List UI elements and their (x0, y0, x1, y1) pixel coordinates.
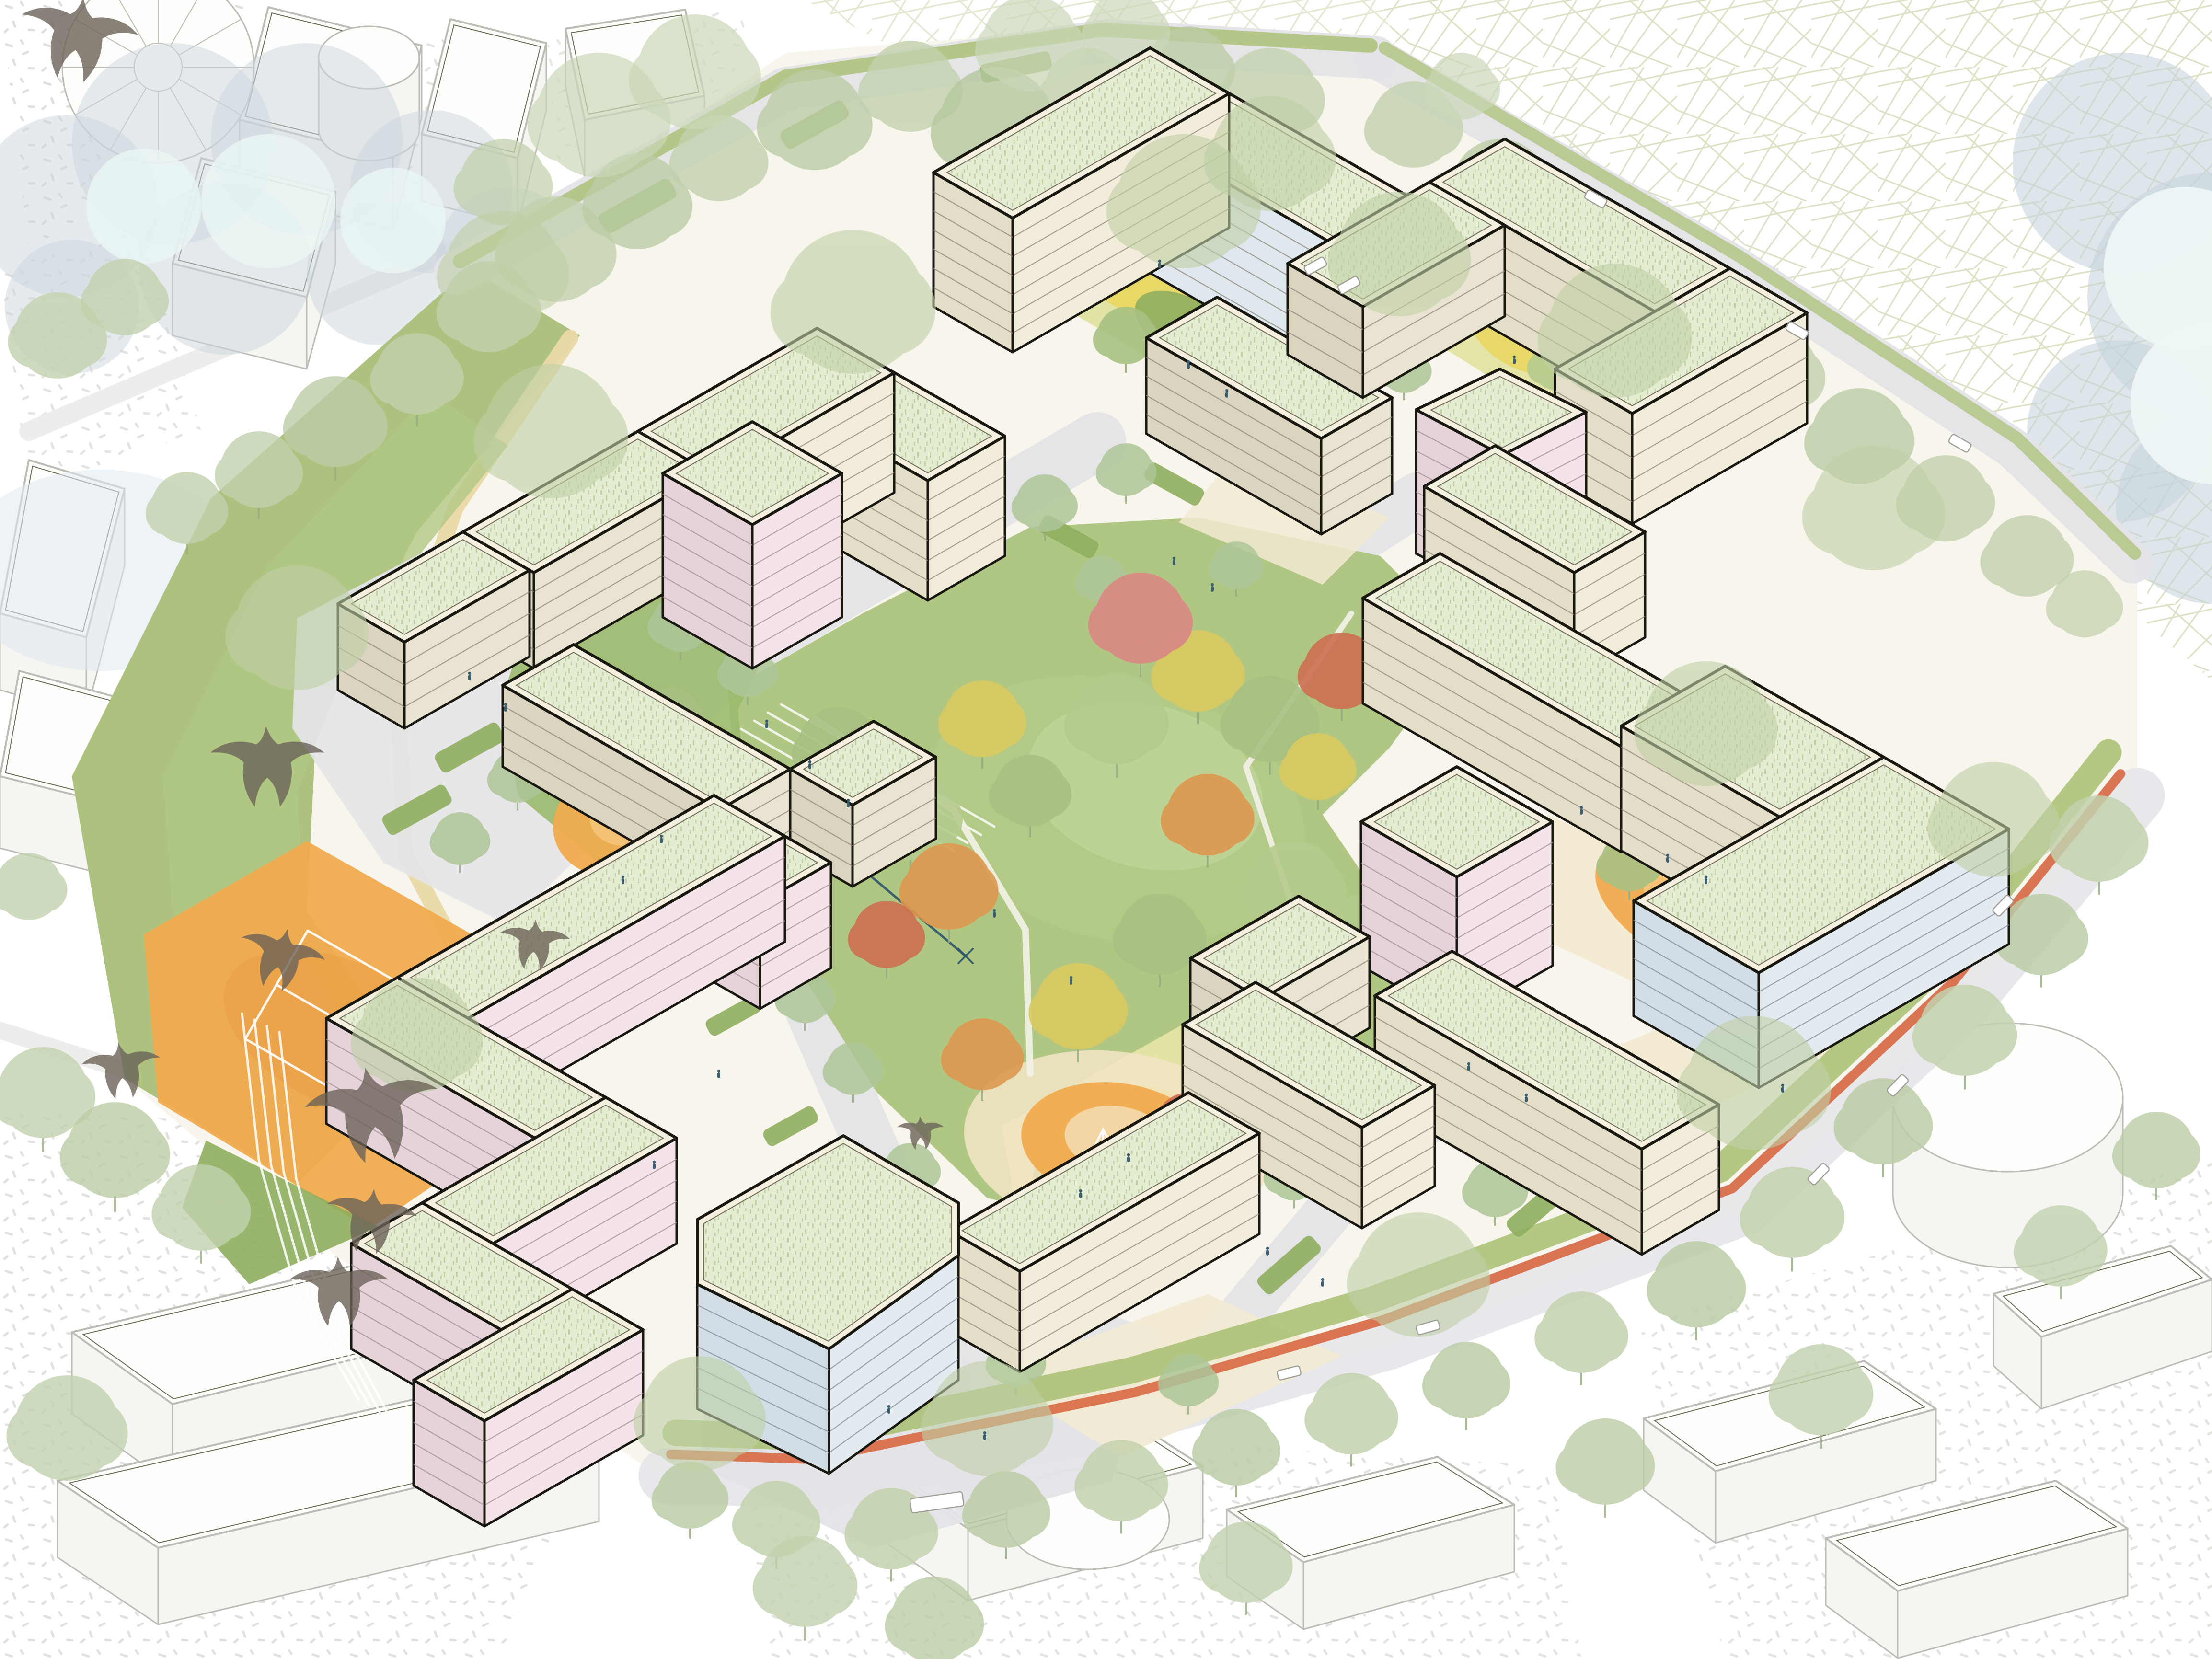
person (1173, 557, 1175, 565)
person (993, 909, 996, 918)
person-body (1158, 263, 1161, 268)
building-A5 (663, 422, 842, 668)
tree-crown (1877, 1098, 1933, 1154)
tree-crown (1185, 1366, 1219, 1400)
person-head (504, 703, 507, 706)
tree-crown (1605, 294, 1692, 381)
tree-crown (885, 1506, 938, 1559)
tree-crown (1697, 690, 1778, 771)
tree-crown (108, 1124, 170, 1186)
tree-crown (798, 1556, 858, 1616)
person (1321, 1278, 1324, 1287)
person-head (1173, 557, 1175, 560)
person-head (993, 909, 996, 912)
person (1525, 1094, 1528, 1102)
person-body (1079, 1192, 1082, 1198)
cloud-core (201, 134, 335, 268)
tree-crown (2093, 815, 2149, 871)
person-head (1580, 806, 1583, 809)
person-head (1705, 876, 1707, 878)
person (622, 876, 624, 884)
tree-crown (119, 276, 169, 326)
person (1705, 876, 1707, 884)
tree-crown (1233, 553, 1264, 584)
tree-crown (1201, 792, 1255, 845)
person (765, 720, 768, 728)
person (1079, 1189, 1082, 1198)
person-body (1127, 1156, 1130, 1162)
tree-crown (1865, 474, 1946, 555)
cloud-core (86, 149, 201, 264)
tree-crown (497, 159, 553, 215)
person-head (1266, 1247, 1269, 1250)
person (1580, 806, 1583, 815)
tree-crown (1599, 1438, 1655, 1494)
tree-crown (1985, 788, 2060, 863)
person (808, 760, 811, 769)
person-head (1666, 854, 1669, 857)
person-head (1158, 260, 1161, 263)
tree-crown (1461, 1359, 1510, 1409)
tree-crown (1457, 68, 1500, 112)
tree-crown (456, 824, 491, 859)
person (1187, 360, 1190, 369)
tree-crown (1575, 1310, 1628, 1363)
tree-crown (59, 1399, 128, 1468)
tree-crown (2054, 1223, 2108, 1277)
tree-crown (329, 397, 388, 456)
person-head (808, 760, 811, 763)
person (1070, 976, 1072, 985)
person (1225, 389, 1228, 398)
person-head (622, 876, 624, 878)
tree-crown (977, 1035, 1024, 1082)
person (717, 1070, 720, 1078)
tree-crown (1390, 220, 1471, 301)
tree-crown (1072, 983, 1128, 1039)
tree-crown (1025, 771, 1072, 818)
person (504, 703, 507, 712)
tree-crown (882, 916, 925, 960)
cloud-core (340, 168, 446, 273)
person (1781, 1084, 1784, 1093)
tree-crown (408, 1003, 483, 1078)
tree-crown (541, 394, 628, 482)
tree-crown (1958, 1005, 2017, 1065)
tree-crown (1313, 749, 1357, 792)
tree (1422, 1342, 1510, 1430)
person-head (1079, 1189, 1082, 1192)
person-body (504, 706, 507, 712)
person-head (653, 1161, 656, 1164)
tree-crown (849, 1054, 884, 1089)
person-body (1187, 363, 1190, 369)
tree-crown (1231, 1426, 1280, 1476)
tree-crown (1744, 1046, 1831, 1133)
tree-crown (686, 40, 761, 115)
tree-crown (1001, 1488, 1050, 1538)
tree-crown (1110, 694, 1169, 753)
tree-crown (2151, 1129, 2200, 1179)
tree-crown (928, 1596, 984, 1652)
person (1467, 1062, 1470, 1071)
person (1158, 260, 1161, 268)
person-body (660, 838, 663, 843)
person-body (1467, 1065, 1470, 1071)
tree-crown (1261, 122, 1336, 196)
tree-crown (1115, 1458, 1168, 1511)
tree (1556, 1418, 1655, 1518)
person-head (1187, 360, 1190, 363)
person-head (1467, 1062, 1470, 1065)
person-head (1225, 389, 1228, 392)
person-head (660, 835, 663, 838)
tree-crown (1690, 1261, 1746, 1317)
person-head (468, 672, 471, 675)
tree-crown (977, 698, 1026, 748)
person-head (1513, 356, 1516, 358)
tree-crown (195, 1184, 251, 1240)
person (660, 835, 663, 843)
tree-crown (979, 1387, 1053, 1462)
person-body (1070, 979, 1072, 985)
person-body (1321, 1281, 1324, 1287)
masterplan-illustration: Axonometric masterplan illustration: hou… (0, 0, 2212, 1659)
person (983, 1431, 986, 1440)
person (1513, 356, 1516, 364)
person-head (765, 720, 768, 723)
person (887, 1405, 890, 1414)
tree-crown (685, 1477, 729, 1521)
tree-crown (1040, 487, 1078, 525)
tree-crown (2080, 586, 2123, 629)
person (653, 1161, 656, 1169)
tree-crown (1122, 455, 1157, 490)
person (1666, 854, 1669, 863)
tree-crown (1345, 1391, 1398, 1444)
person (1211, 583, 1214, 592)
person-body (847, 802, 850, 807)
tree-crown (1786, 1187, 1845, 1247)
person-head (1127, 1153, 1130, 1156)
person-head (1321, 1278, 1324, 1281)
tree-crown (24, 868, 68, 912)
tree-crown (1240, 1540, 1293, 1593)
person-body (993, 912, 996, 918)
person-body (887, 1408, 890, 1414)
person-head (983, 1431, 986, 1434)
person-body (1781, 1087, 1784, 1093)
person-body (1225, 392, 1228, 398)
person-head (1781, 1084, 1784, 1087)
person-head (1525, 1094, 1528, 1096)
tree-crown (842, 263, 936, 356)
masterplan-stage: Axonometric masterplan illustration: hou… (0, 0, 2212, 1659)
tree-crown (1814, 1365, 1874, 1424)
person (847, 799, 850, 807)
person-body (983, 1434, 986, 1440)
tree-crown (943, 863, 999, 919)
person-body (1173, 560, 1175, 565)
tree-crown (253, 449, 303, 498)
tree-crown (182, 488, 229, 535)
tree-crown (411, 351, 464, 404)
person-body (1211, 586, 1214, 592)
tree-crown (691, 1382, 766, 1457)
person-head (717, 1070, 720, 1072)
tree-crown (801, 982, 836, 1017)
person (1266, 1247, 1269, 1256)
tree-crown (1939, 475, 1995, 531)
person-head (887, 1405, 890, 1408)
person-head (847, 799, 850, 802)
tree-crown (495, 237, 569, 311)
tree-crown (2035, 912, 2088, 965)
person-body (468, 675, 471, 680)
person-body (717, 1072, 720, 1078)
tree-crown (713, 135, 769, 191)
person-body (622, 878, 624, 884)
person-head (1211, 583, 1214, 586)
person-body (1513, 358, 1516, 364)
tree-crown (288, 594, 369, 675)
person-body (1525, 1096, 1528, 1102)
person-body (808, 763, 811, 769)
person (1127, 1153, 1130, 1162)
person-body (1580, 809, 1583, 815)
person-body (1666, 857, 1669, 863)
person-body (1266, 1250, 1269, 1256)
tree-crown (1134, 593, 1193, 653)
person-body (765, 723, 768, 728)
person-body (1705, 878, 1707, 884)
tree-crown (1023, 17, 1085, 79)
person-body (653, 1164, 656, 1169)
tree-crown (1409, 1241, 1490, 1322)
person-head (1070, 976, 1072, 979)
person (468, 672, 471, 680)
